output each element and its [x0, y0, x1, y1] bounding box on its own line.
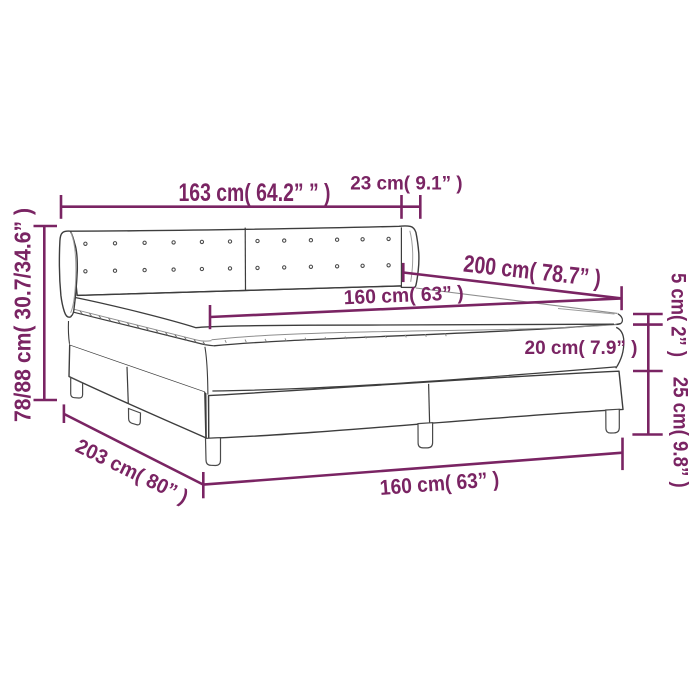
svg-text:25 cm( 9.8” ): 25 cm( 9.8” ) — [669, 377, 692, 488]
svg-text:20 cm( 7.9” ): 20 cm( 7.9” ) — [525, 338, 638, 359]
svg-text:163 cm( 64.2” ” ): 163 cm( 64.2” ” ) — [179, 179, 331, 207]
svg-text:78/88 cm( 30.7/34.6” ): 78/88 cm( 30.7/34.6” ) — [9, 208, 35, 422]
svg-text:5 cm( 2” ): 5 cm( 2” ) — [666, 273, 690, 357]
svg-text:23 cm( 9.1” ): 23 cm( 9.1” ) — [350, 173, 462, 194]
